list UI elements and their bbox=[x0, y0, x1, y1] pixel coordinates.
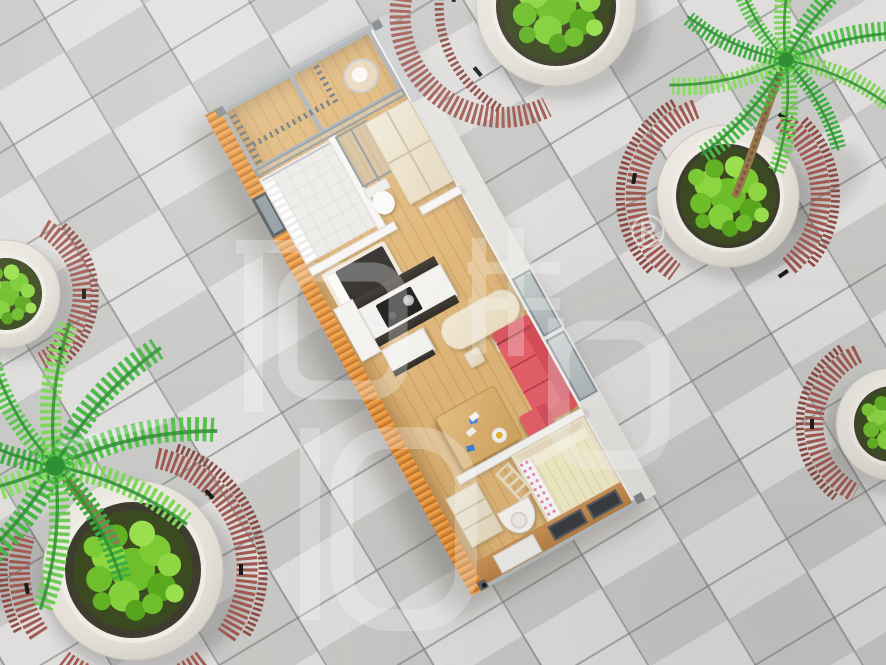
watermark-glyphs bbox=[58, 228, 660, 620]
registered-trademark-symbol: ® bbox=[625, 205, 671, 259]
scene: ® bbox=[0, 0, 886, 665]
watermark: ® bbox=[0, 0, 886, 665]
